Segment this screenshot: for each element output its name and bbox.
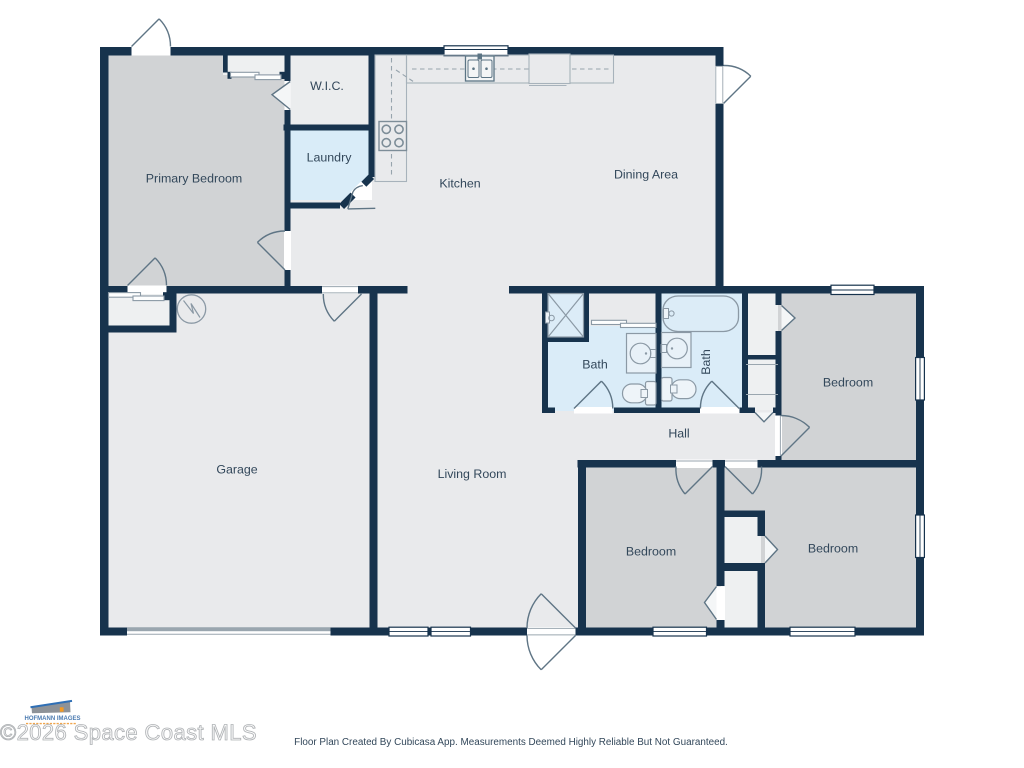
svg-text:Bedroom: Bedroom xyxy=(823,376,873,390)
svg-text:Floor Plan Created By Cubicasa: Floor Plan Created By Cubicasa App. Meas… xyxy=(294,737,728,748)
svg-text:Kitchen: Kitchen xyxy=(439,177,480,191)
svg-text:Hall: Hall xyxy=(668,427,689,441)
svg-text:Living Room: Living Room xyxy=(438,467,507,481)
svg-text:W.I.C.: W.I.C. xyxy=(310,79,344,93)
svg-text:Primary Bedroom: Primary Bedroom xyxy=(146,172,242,186)
svg-text:Bedroom: Bedroom xyxy=(808,542,858,556)
svg-text:©2026 Space Coast MLS: ©2026 Space Coast MLS xyxy=(0,720,257,745)
svg-text:Dining Area: Dining Area xyxy=(614,168,678,182)
svg-text:Laundry: Laundry xyxy=(307,151,353,165)
svg-text:Bath: Bath xyxy=(582,358,608,372)
svg-text:Bedroom: Bedroom xyxy=(626,545,676,559)
svg-text:Bath: Bath xyxy=(699,349,713,375)
svg-text:Garage: Garage xyxy=(216,463,257,477)
